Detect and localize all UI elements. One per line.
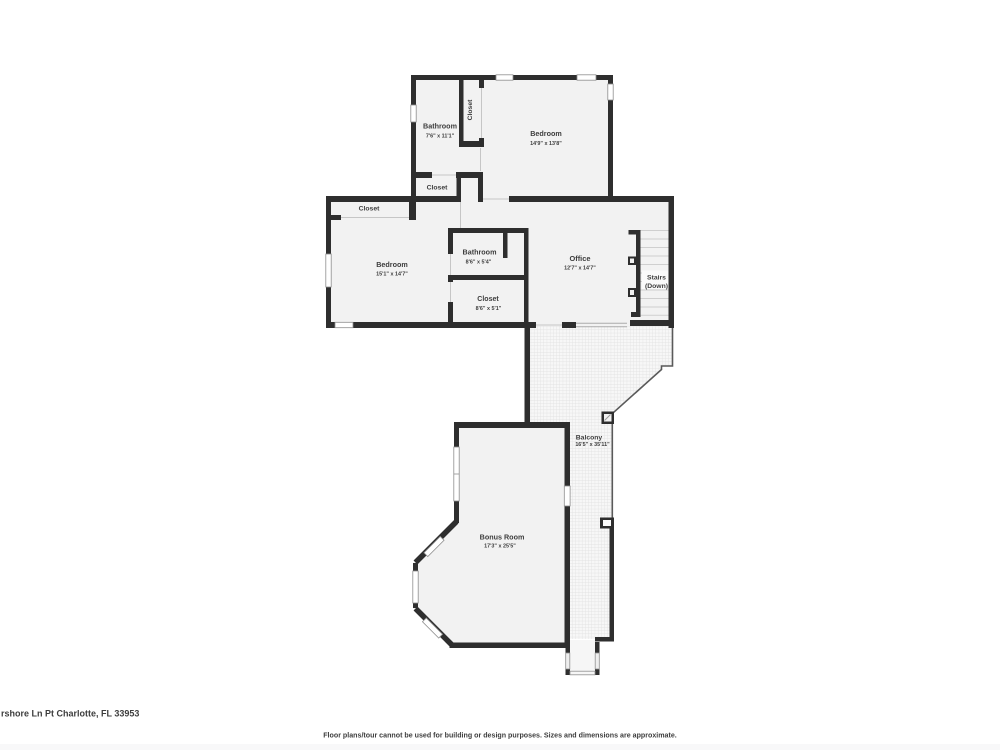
svg-text:8'6" x 5'1": 8'6" x 5'1" [476, 306, 502, 312]
svg-text:7'6" x 11'1": 7'6" x 11'1" [426, 133, 455, 139]
svg-text:14'9" x 13'8": 14'9" x 13'8" [530, 141, 562, 147]
svg-text:(Down): (Down) [645, 283, 668, 290]
svg-text:Floor plans/tour cannot be use: Floor plans/tour cannot be used for buil… [323, 732, 677, 740]
svg-text:Closet: Closet [467, 99, 474, 121]
svg-text:15'1" x 14'7": 15'1" x 14'7" [376, 272, 408, 278]
svg-text:Bathroom: Bathroom [463, 248, 497, 257]
svg-text:8'6" x 5'4": 8'6" x 5'4" [466, 259, 492, 265]
svg-text:Balcony: Balcony [576, 435, 603, 442]
svg-text:Bedroom: Bedroom [530, 129, 562, 138]
svg-text:Bedroom: Bedroom [376, 260, 408, 269]
svg-text:Closet: Closet [477, 296, 499, 303]
svg-text:17'3" x 25'5": 17'3" x 25'5" [484, 543, 516, 549]
svg-text:rshore Ln Pt Charlotte, FL 339: rshore Ln Pt Charlotte, FL 33953 [1, 709, 139, 719]
svg-text:Closet: Closet [427, 184, 449, 191]
svg-text:Bathroom: Bathroom [423, 121, 457, 130]
svg-text:Bonus Room: Bonus Room [480, 533, 525, 542]
svg-text:Office: Office [570, 254, 591, 263]
svg-text:Closet: Closet [359, 205, 381, 212]
svg-text:12'7" x 14'7": 12'7" x 14'7" [564, 266, 596, 272]
svg-text:Stairs: Stairs [647, 274, 666, 281]
svg-text:16'5" x 35'11": 16'5" x 35'11" [575, 442, 610, 448]
